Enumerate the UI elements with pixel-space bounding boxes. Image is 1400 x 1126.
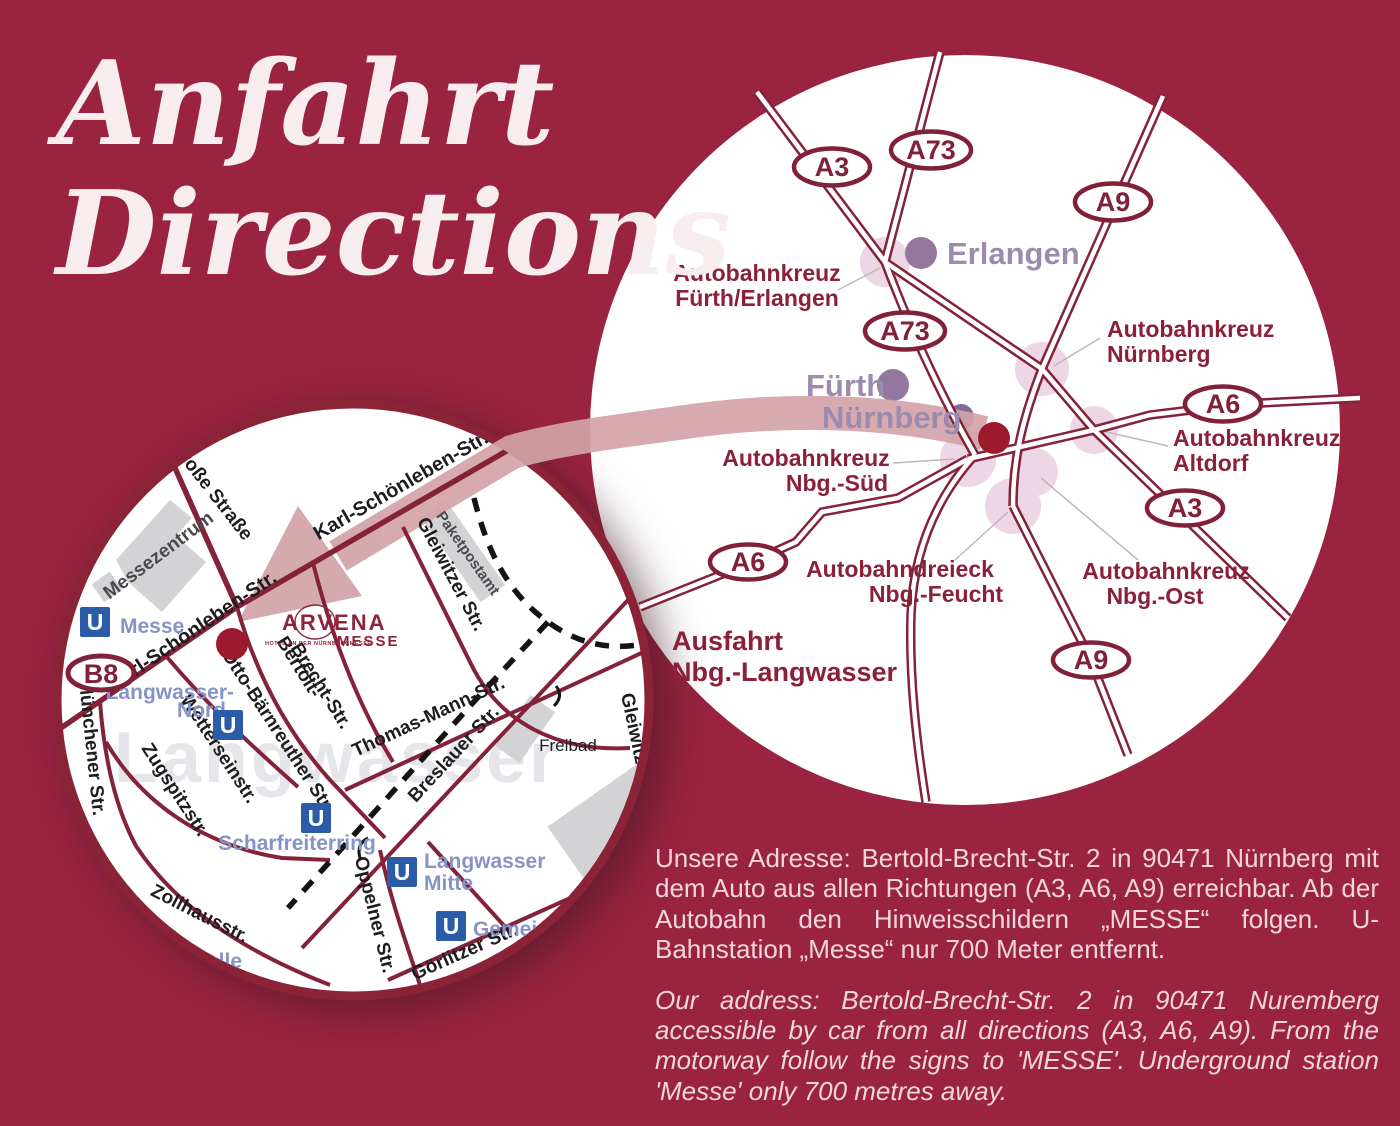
badge-a3-southeast: A3 bbox=[1147, 491, 1223, 526]
svg-text:Autobahnkreuz: Autobahnkreuz bbox=[1173, 425, 1340, 451]
poster-title: Anfahrt Directions bbox=[56, 40, 731, 300]
nuernberg-label: Nürnberg bbox=[822, 400, 962, 435]
svg-text:A6: A6 bbox=[1206, 389, 1241, 419]
badge-a6-east: A6 bbox=[1185, 387, 1261, 422]
svg-text:Nürnberg: Nürnberg bbox=[1107, 341, 1211, 367]
svg-text:A73: A73 bbox=[906, 135, 956, 165]
destination-dot bbox=[978, 422, 1010, 454]
svg-text:Scharfreiterring: Scharfreiterring bbox=[218, 832, 376, 855]
svg-text:U: U bbox=[394, 859, 411, 885]
svg-text:ARVENA: ARVENA bbox=[282, 610, 387, 635]
title-line-de: Anfahrt bbox=[56, 40, 731, 170]
exit-label-line1: Ausfahrt bbox=[672, 626, 783, 656]
svg-text:Nbg.-Süd: Nbg.-Süd bbox=[786, 470, 888, 496]
address-block: Unsere Adresse: Bertold-Brecht-Str. 2 in… bbox=[655, 843, 1379, 1126]
svg-text:A3: A3 bbox=[1168, 493, 1203, 523]
svg-text:Autobahnkreuz: Autobahnkreuz bbox=[722, 445, 889, 471]
fuerth-label: Fürth bbox=[806, 368, 885, 403]
svg-text:A6: A6 bbox=[731, 547, 766, 577]
svg-text:A9: A9 bbox=[1074, 645, 1109, 675]
svg-text:B8: B8 bbox=[84, 659, 119, 689]
svg-text:Nbg.-Feucht: Nbg.-Feucht bbox=[869, 581, 1003, 607]
svg-text:U: U bbox=[220, 712, 237, 738]
svg-text:U: U bbox=[443, 913, 460, 939]
badge-a6-southwest: A6 bbox=[710, 545, 786, 580]
hotel-marker bbox=[216, 628, 248, 660]
svg-text:Autobahndreieck: Autobahndreieck bbox=[806, 556, 994, 582]
address-english: Our address: Bertold-Brecht-Str. 2 in 90… bbox=[655, 985, 1379, 1107]
svg-text:A73: A73 bbox=[880, 316, 930, 346]
erlangen-label: Erlangen bbox=[947, 236, 1080, 271]
svg-text:U: U bbox=[308, 805, 325, 831]
title-line-en: Directions bbox=[56, 170, 731, 300]
erlangen-dot bbox=[905, 237, 937, 269]
hotel-logo: ARVENA HOTEL AN DER NÜRNBERGMESSE MESSE bbox=[265, 605, 400, 650]
address-german: Unsere Adresse: Bertold-Brecht-Str. 2 in… bbox=[655, 843, 1379, 965]
freibad-label: Freibad bbox=[539, 736, 597, 755]
badge-a73-mid: A73 bbox=[865, 313, 945, 350]
svg-text:Autobahnkreuz: Autobahnkreuz bbox=[1082, 558, 1249, 584]
svg-text:A9: A9 bbox=[1096, 187, 1131, 217]
svg-text:U: U bbox=[87, 609, 104, 635]
svg-text:Messe: Messe bbox=[120, 615, 184, 638]
svg-text:Nbg.-Ost: Nbg.-Ost bbox=[1106, 583, 1203, 609]
badge-a9-south: A9 bbox=[1053, 643, 1129, 678]
badge-a3-north: A3 bbox=[794, 149, 870, 186]
badge-a9-north: A9 bbox=[1075, 184, 1151, 221]
svg-text:Autobahnkreuz: Autobahnkreuz bbox=[1107, 316, 1274, 342]
exit-label-line2: Nbg.-Langwasser bbox=[672, 657, 898, 687]
svg-text:Mitte: Mitte bbox=[424, 872, 473, 895]
svg-text:MESSE: MESSE bbox=[337, 633, 400, 650]
svg-text:A3: A3 bbox=[815, 152, 850, 182]
badge-a73-north: A73 bbox=[891, 132, 971, 169]
b8-badge: B8 bbox=[68, 656, 134, 690]
directions-poster: Langwasser bbox=[0, 0, 1400, 1050]
svg-text:Altdorf: Altdorf bbox=[1173, 450, 1249, 476]
svg-text:Langwasser: Langwasser bbox=[424, 850, 545, 873]
